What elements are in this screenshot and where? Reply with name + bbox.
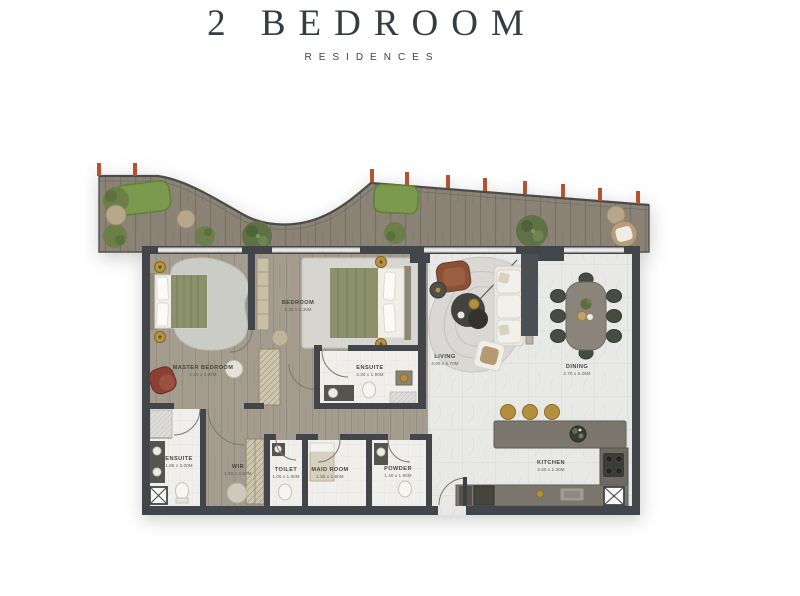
kitchen-island (494, 421, 626, 448)
room-label-wir: WIR (232, 464, 244, 470)
room-dims-wir: 1.90 x 2.60M (224, 471, 251, 476)
refrigerator (474, 486, 494, 505)
service-shaft (150, 487, 167, 504)
room-label-maid-room: MAID ROOM (311, 467, 348, 473)
sofa (494, 266, 524, 346)
bedroom-pouf (272, 330, 288, 346)
room-dims-maid-room: 1.85 x 1.90M (316, 474, 343, 479)
room-dims-bedroom: 3.30 x 3.30M (284, 307, 311, 312)
grass-patch-icon (373, 184, 418, 214)
room-label-toilet: TOILET (275, 467, 298, 473)
service-shaft (604, 487, 624, 505)
room-dims-dining: 2.70 x 5.25M (563, 371, 590, 376)
room-dims-kitchen: 4.60 x 2.30M (537, 467, 564, 472)
media-partition-wall (521, 254, 538, 336)
accent-chair (473, 339, 506, 372)
room-dims-living: 4.00 x 5.70M (431, 361, 458, 366)
room-dims-master-bedroom: 4.20 x 3.00M (189, 372, 216, 377)
bedroom-wardrobe (259, 349, 280, 405)
room-label-bedroom-ensuite: ENSUITE (356, 365, 383, 371)
master-bed (148, 273, 207, 330)
gold-fixture (537, 491, 544, 498)
ensuite-toilet (176, 483, 189, 504)
room-dims-master-ensuite: 1.85 x 3.00M (165, 463, 192, 468)
kitchen-sink (560, 488, 584, 501)
room-label-master-ensuite: ENSUITE (165, 456, 192, 462)
room-dims-toilet: 1.05 x 1.90M (272, 474, 299, 479)
room-label-master-bedroom: MASTER BEDROOM (173, 365, 234, 371)
sliding-door-dining (564, 248, 624, 253)
terrace (97, 163, 649, 252)
shower (150, 410, 172, 438)
powder-wc (399, 481, 412, 497)
shower-mat (390, 392, 416, 403)
ensuite2-wc (363, 382, 376, 398)
gold-lamp-icon (400, 374, 408, 382)
room-dims-powder: 1.40 x 1.90M (384, 473, 411, 478)
room-label-dining: DINING (566, 364, 588, 370)
room-label-powder: POWDER (384, 466, 412, 472)
floor-plan: MASTER BEDROOM 4.20 x 3.00M BEDROOM 3.30… (0, 0, 800, 596)
window-bedroom (272, 248, 360, 253)
island-sink-planter (570, 426, 586, 442)
room-label-bedroom: BEDROOM (282, 300, 314, 306)
sliding-door-living (424, 248, 516, 253)
bar-stools (501, 405, 560, 420)
window-master (158, 248, 242, 253)
room-label-living: LIVING (434, 354, 455, 360)
toilet-wc (279, 484, 292, 500)
room-dims-bedroom-ensuite: 3.30 x 1.90M (356, 372, 383, 377)
wir-pouf (227, 483, 247, 503)
terrace-chair (611, 221, 637, 247)
second-bed (330, 266, 411, 340)
room-label-kitchen: KITCHEN (537, 460, 565, 466)
cooktop (603, 453, 624, 477)
bedroom-cabinet (257, 258, 269, 330)
